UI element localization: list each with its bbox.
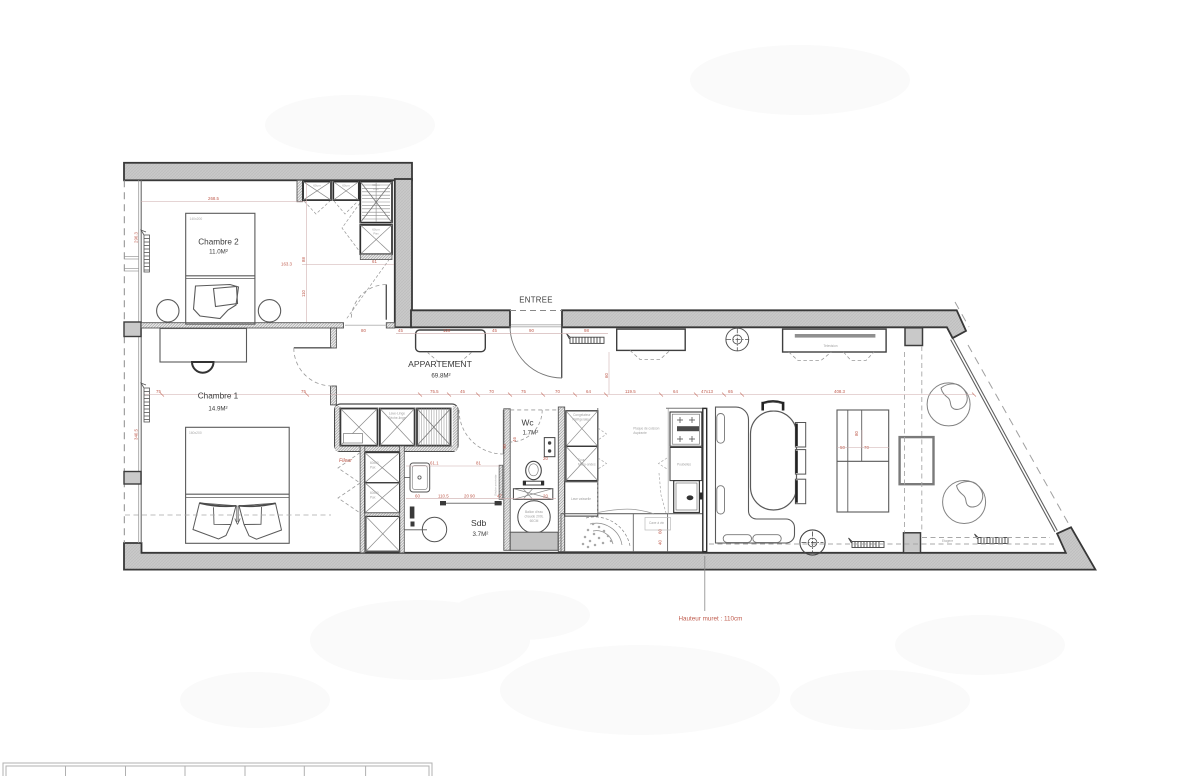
svg-text:40: 40 — [658, 540, 663, 545]
svg-text:340.5: 340.5 — [134, 428, 139, 440]
svg-text:70: 70 — [555, 389, 560, 394]
svg-text:Ballon d'eau: Ballon d'eau — [525, 510, 543, 514]
svg-text:Wc: Wc — [522, 418, 534, 428]
svg-text:60x60: 60x60 — [370, 461, 379, 465]
svg-text:163.3: 163.3 — [281, 262, 293, 267]
svg-text:90: 90 — [470, 494, 475, 499]
svg-text:88: 88 — [301, 257, 306, 262]
svg-text:Chambre 1: Chambre 1 — [198, 392, 239, 401]
svg-text:268.5: 268.5 — [208, 196, 220, 201]
svg-text:Pax: Pax — [373, 232, 379, 236]
svg-text:60cm: 60cm — [342, 184, 350, 188]
svg-text:60: 60 — [604, 373, 609, 378]
svg-text:120: 120 — [443, 328, 451, 333]
svg-text:90: 90 — [529, 328, 534, 333]
svg-text:70: 70 — [489, 389, 494, 394]
svg-text:45: 45 — [398, 328, 403, 333]
svg-text:75: 75 — [301, 389, 306, 394]
svg-text:60: 60 — [415, 494, 420, 499]
svg-text:Micro-ondes: Micro-ondes — [578, 462, 596, 466]
svg-text:75: 75 — [521, 389, 526, 394]
svg-text:APPARTEMENT: APPARTEMENT — [408, 359, 472, 369]
svg-text:90: 90 — [502, 444, 507, 449]
svg-text:296.3: 296.3 — [134, 231, 139, 243]
svg-text:110: 110 — [301, 289, 306, 297]
svg-text:Chambre 2: Chambre 2 — [198, 238, 239, 247]
svg-text:Aspirante: Aspirante — [633, 431, 647, 435]
svg-text:408.3: 408.3 — [834, 389, 846, 394]
svg-text:64: 64 — [673, 389, 678, 394]
svg-text:75.5: 75.5 — [430, 389, 439, 394]
svg-text:Television: Television — [824, 344, 838, 348]
svg-text:20: 20 — [543, 456, 548, 461]
svg-text:Sèche-linge: Sèche-linge — [388, 416, 406, 420]
svg-text:chaude 200L: chaude 200L — [524, 515, 543, 519]
svg-text:80: 80 — [361, 328, 366, 333]
svg-text:75: 75 — [156, 389, 161, 394]
svg-text:69.8M²: 69.8M² — [431, 373, 450, 380]
svg-text:47: 47 — [497, 494, 502, 499]
svg-text:61.1: 61.1 — [430, 461, 439, 466]
svg-text:45: 45 — [492, 328, 497, 333]
svg-text:1.7M²: 1.7M² — [523, 430, 539, 437]
svg-text:14.9M²: 14.9M² — [208, 406, 227, 413]
svg-text:Fileur: Fileur — [339, 458, 352, 464]
svg-text:11.0M²: 11.0M² — [209, 249, 228, 256]
svg-text:Cave à vin: Cave à vin — [649, 521, 664, 525]
svg-text:119.5: 119.5 — [625, 389, 636, 394]
svg-text:140x200: 140x200 — [190, 217, 203, 221]
svg-text:ENTREE: ENTREE — [519, 296, 552, 305]
svg-text:110.5: 110.5 — [438, 494, 449, 499]
svg-text:Poubelles: Poubelles — [677, 463, 691, 467]
svg-text:Sdb: Sdb — [471, 518, 487, 528]
svg-text:Pax: Pax — [370, 496, 376, 500]
svg-text:46: 46 — [512, 437, 517, 442]
svg-text:60CM: 60CM — [530, 519, 539, 523]
svg-text:3.7M²: 3.7M² — [473, 531, 489, 538]
svg-text:160x200: 160x200 — [189, 431, 202, 435]
svg-text:65: 65 — [728, 389, 733, 394]
svg-text:64: 64 — [586, 389, 591, 394]
svg-text:Pax: Pax — [373, 187, 379, 191]
svg-text:Refrigerateur: Refrigerateur — [572, 417, 592, 421]
svg-text:Pax: Pax — [370, 466, 376, 470]
svg-text:47x13: 47x13 — [701, 389, 714, 394]
svg-text:20: 20 — [543, 494, 548, 499]
svg-text:20: 20 — [464, 494, 469, 499]
svg-text:45: 45 — [460, 389, 465, 394]
svg-text:Hauteur muret : 110cm: Hauteur muret : 110cm — [679, 616, 743, 623]
svg-text:Lave-Linge: Lave-Linge — [389, 412, 405, 416]
svg-text:61: 61 — [372, 259, 377, 264]
svg-text:80: 80 — [854, 431, 859, 436]
svg-text:60cm: 60cm — [313, 184, 321, 188]
svg-text:98: 98 — [584, 328, 589, 333]
svg-text:Lave vaisselle: Lave vaisselle — [571, 497, 591, 501]
svg-text:60x60: 60x60 — [370, 491, 379, 495]
svg-text:Etagere: Etagere — [942, 539, 953, 543]
svg-text:81: 81 — [476, 461, 481, 466]
svg-text:60: 60 — [658, 529, 663, 534]
